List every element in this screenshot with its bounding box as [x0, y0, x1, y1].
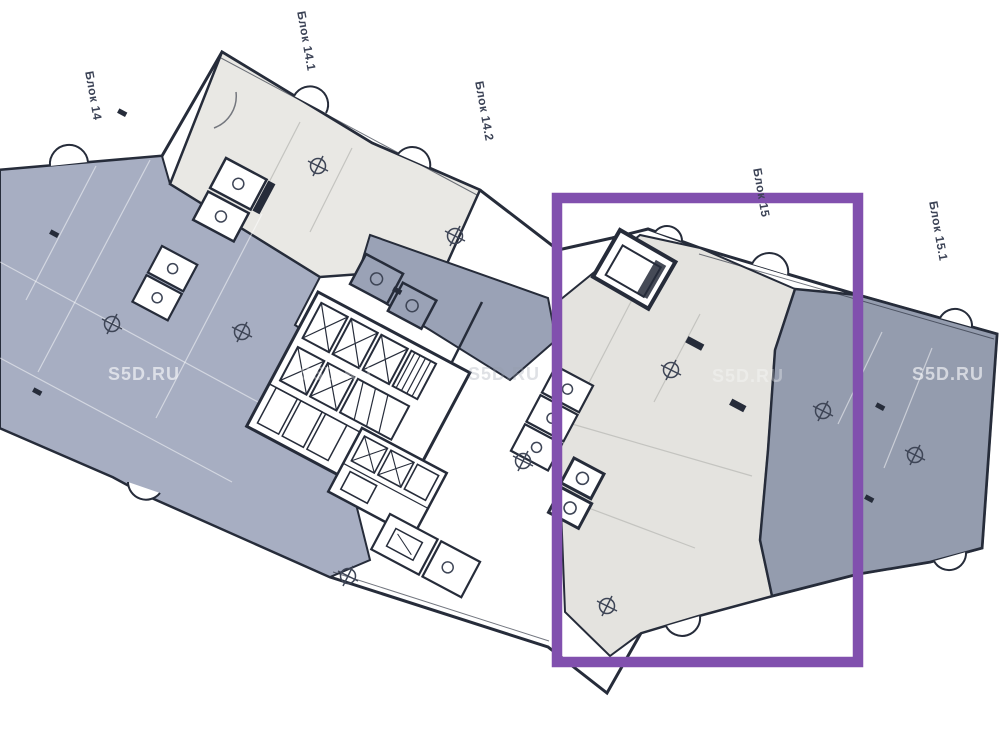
- watermark-tile-3: S5D.RU: [468, 364, 540, 385]
- block-15-area: [558, 235, 795, 656]
- watermark-tile-4: S5D.RU: [712, 366, 784, 387]
- block-15-1-area: [760, 289, 997, 596]
- watermark-tile-2: S5D.RU: [300, 364, 372, 385]
- floor-plan-screenshot: Блок 14 Блок 14.1 Блок 14.2 Блок 15 Блок…: [0, 0, 1000, 750]
- watermark-tile-5: S5D.RU: [912, 364, 984, 385]
- watermark-tile-1: S5D.RU: [108, 364, 180, 385]
